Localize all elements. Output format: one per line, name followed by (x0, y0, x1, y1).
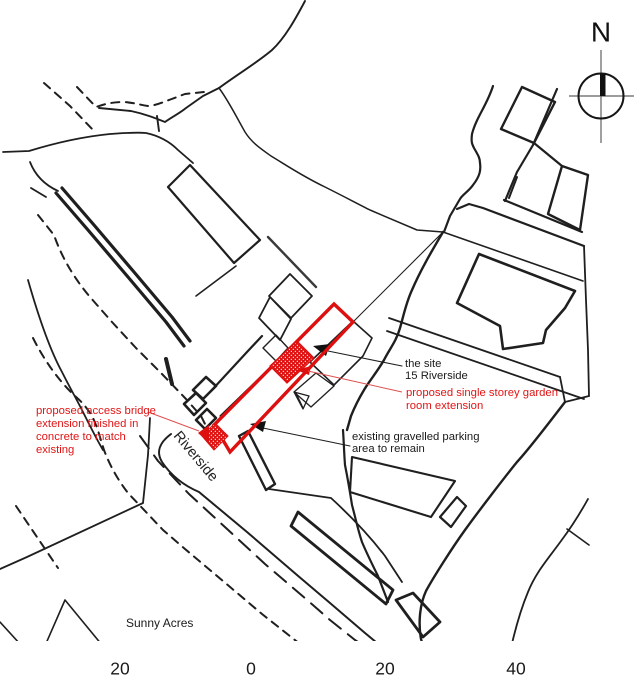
svg-text:extension finished in: extension finished in (36, 418, 138, 430)
svg-text:area to remain: area to remain (352, 443, 425, 455)
svg-text:existing: existing (36, 444, 74, 456)
svg-text:0: 0 (246, 659, 256, 679)
svg-text:existing gravelled parking: existing gravelled parking (352, 431, 479, 443)
svg-text:20: 20 (110, 659, 130, 679)
svg-text:proposed access bridge: proposed access bridge (36, 405, 156, 417)
svg-text:room extension: room extension (406, 400, 483, 412)
svg-text:Sunny Acres: Sunny Acres (126, 616, 193, 630)
svg-text:20: 20 (375, 659, 395, 679)
svg-text:15 Riverside: 15 Riverside (405, 370, 468, 382)
svg-text:proposed single storey garden: proposed single storey garden (406, 387, 558, 399)
svg-text:N: N (591, 17, 611, 48)
svg-text:40: 40 (506, 659, 526, 679)
svg-text:the site: the site (405, 358, 441, 370)
svg-text:concrete to match: concrete to match (36, 431, 126, 443)
